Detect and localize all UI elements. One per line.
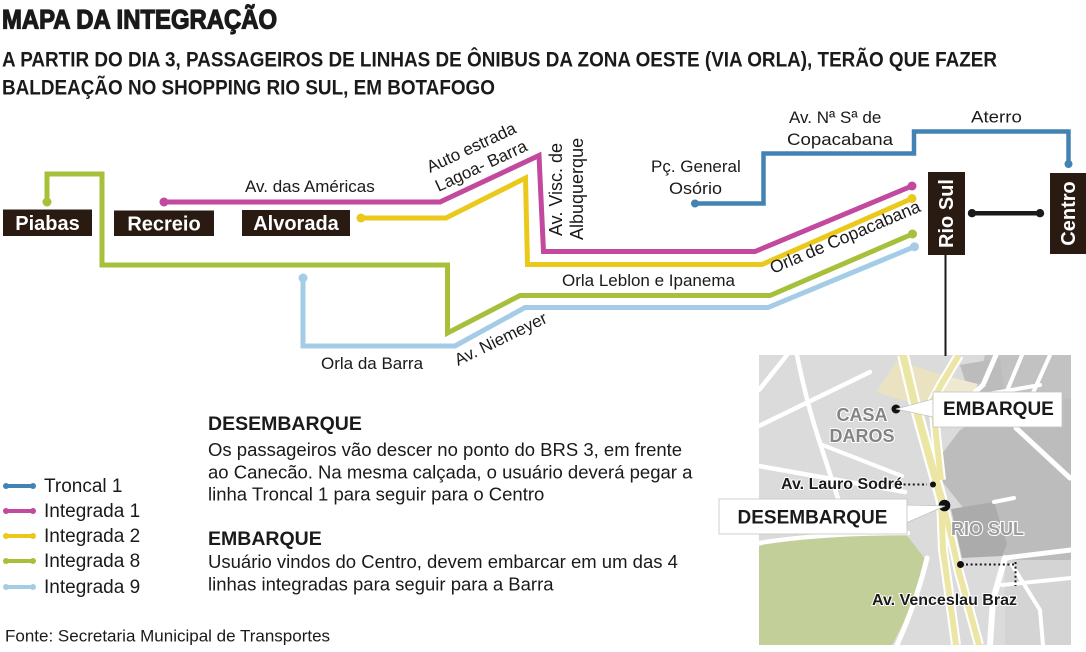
svg-text:Integrada 8: Integrada 8: [44, 551, 140, 572]
svg-text:Usuário vindos do Centro, deve: Usuário vindos do Centro, devem embarcar…: [208, 551, 678, 572]
svg-text:Integrada 1: Integrada 1: [44, 501, 140, 522]
svg-text:Integrada 2: Integrada 2: [44, 526, 140, 547]
svg-text:Os passageiros vão descer no p: Os passageiros vão descer no ponto do BR…: [208, 439, 682, 460]
svg-text:DAROS: DAROS: [829, 426, 894, 446]
svg-text:Recreio: Recreio: [127, 214, 200, 236]
svg-text:Pç. General: Pç. General: [651, 157, 741, 176]
svg-text:Av. Lauro Sodré: Av. Lauro Sodré: [781, 476, 903, 493]
svg-text:DESEMBARQUE: DESEMBARQUE: [208, 413, 362, 435]
svg-text:Aterro: Aterro: [971, 107, 1022, 126]
svg-text:Albuquerque: Albuquerque: [567, 138, 587, 240]
svg-text:EMBARQUE: EMBARQUE: [943, 399, 1054, 420]
svg-text:RIO SUL: RIO SUL: [951, 519, 1024, 539]
svg-text:Av. Venceslau Braz: Av. Venceslau Braz: [872, 592, 1017, 609]
svg-text:BALDEAÇÃO NO SHOPPING RIO SUL,: BALDEAÇÃO NO SHOPPING RIO SUL, EM BOTAFO…: [2, 76, 495, 100]
svg-text:A PARTIR DO DIA 3, PASSAGEIROS: A PARTIR DO DIA 3, PASSAGEIROS DE LINHAS…: [2, 47, 998, 72]
svg-text:Troncal 1: Troncal 1: [44, 476, 123, 497]
svg-text:Centro: Centro: [1058, 181, 1080, 245]
svg-text:linhas integradas para seguir: linhas integradas para seguir para a Bar…: [208, 574, 554, 595]
svg-text:Rio Sul: Rio Sul: [936, 179, 958, 248]
svg-text:Fonte: Secretaria Municipal de: Fonte: Secretaria Municipal de Transport…: [5, 627, 330, 646]
svg-text:EMBARQUE: EMBARQUE: [208, 528, 322, 550]
svg-text:MAPA DA INTEGRAÇÃO: MAPA DA INTEGRAÇÃO: [2, 3, 277, 35]
svg-text:Alvorada: Alvorada: [253, 213, 339, 235]
svg-text:CASA: CASA: [836, 405, 887, 425]
svg-text:Av. Visc. de: Av. Visc. de: [546, 143, 566, 236]
svg-text:Piabas: Piabas: [15, 213, 79, 235]
svg-text:Av. das Américas: Av. das Américas: [245, 177, 375, 196]
svg-text:Orla da Barra: Orla da Barra: [321, 354, 424, 373]
svg-text:DESEMBARQUE: DESEMBARQUE: [738, 508, 888, 529]
svg-text:Orla Leblon e Ipanema: Orla Leblon e Ipanema: [562, 271, 735, 290]
svg-text:Osório: Osório: [669, 178, 722, 197]
svg-text:linha Troncal 1 para seguir pa: linha Troncal 1 para seguir para o Centr…: [208, 484, 544, 505]
svg-text:Integrada 9: Integrada 9: [44, 577, 140, 598]
svg-text:ao Canecão. Na mesma calçada,: ao Canecão. Na mesma calçada, o usuário …: [208, 462, 693, 483]
svg-text:Av. Nª Sª de: Av. Nª Sª de: [789, 108, 881, 127]
svg-text:Copacabana: Copacabana: [787, 130, 893, 149]
